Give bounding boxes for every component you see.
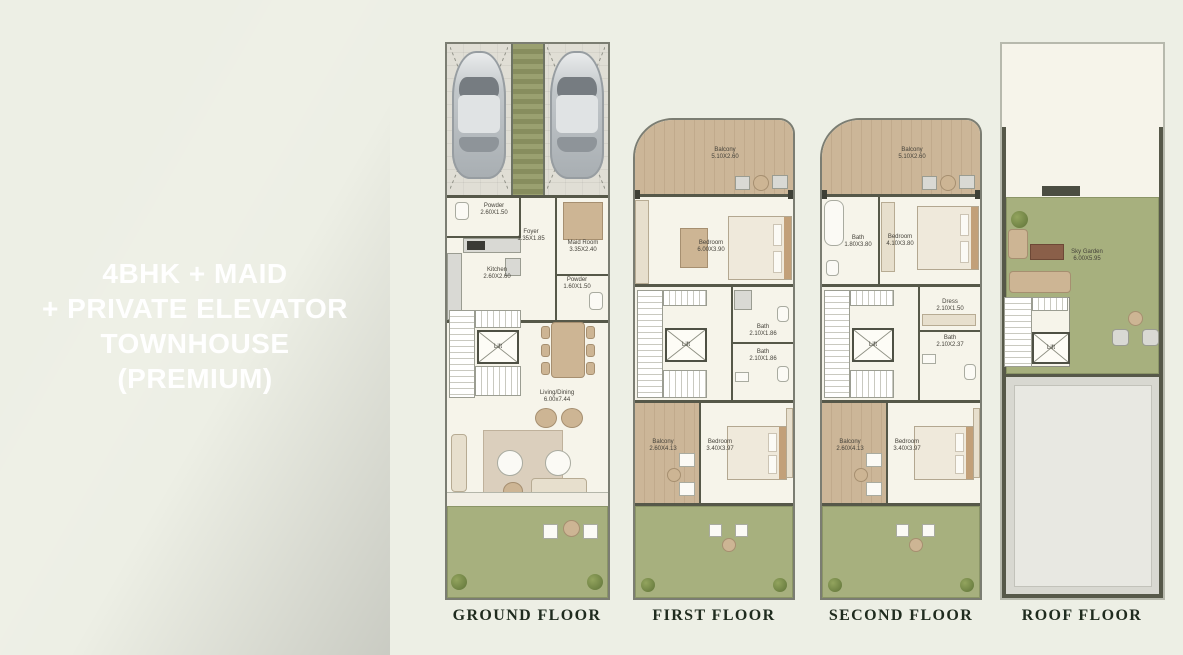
maid-bed xyxy=(563,202,603,240)
wall xyxy=(555,198,557,320)
room-dims: 2.60X1.50 xyxy=(480,210,507,217)
garden-chair xyxy=(1142,329,1159,346)
car-roof xyxy=(458,95,500,133)
roof-area xyxy=(1006,377,1159,594)
lift-label: Lift xyxy=(1034,334,1068,362)
pillow xyxy=(955,433,964,452)
lift-label: Lift xyxy=(854,330,892,360)
plant xyxy=(641,578,655,592)
room-name: Living/Dining xyxy=(540,390,574,397)
armchair xyxy=(561,408,583,428)
lift: Lift xyxy=(665,328,707,362)
title-line-2: + PRIVATE ELEVATOR xyxy=(0,291,390,326)
room-name: Foyer xyxy=(523,229,538,236)
room-dims: 3.40X3.97 xyxy=(893,446,920,453)
wall xyxy=(886,403,888,503)
post xyxy=(822,190,827,199)
room-label: Powder 1.60X1.50 xyxy=(563,277,590,291)
room-dims: 1.60X1.50 xyxy=(563,284,590,291)
balcony-chair xyxy=(772,175,788,189)
garden-table xyxy=(563,520,580,537)
sofa xyxy=(451,434,467,492)
lift-label: Lift xyxy=(667,330,705,360)
wall xyxy=(635,194,793,197)
title-line-3: TOWNHOUSE xyxy=(0,326,390,361)
car-windshield xyxy=(557,77,597,97)
garden-chair xyxy=(709,524,722,537)
stairs xyxy=(663,290,707,306)
stairs xyxy=(850,290,894,306)
garden-area xyxy=(822,506,980,598)
room-label: Maid Room 3.35X2.40 xyxy=(568,240,599,254)
room-dims: 2.60X4.13 xyxy=(836,446,863,453)
room-label: Powder 2.60X1.50 xyxy=(480,203,507,217)
wall xyxy=(1159,127,1163,598)
pillow xyxy=(960,214,969,236)
balcony-chair xyxy=(959,175,975,189)
toilet xyxy=(964,364,976,380)
balcony-chair xyxy=(866,453,882,467)
pillow xyxy=(768,455,777,474)
bed-headboard xyxy=(971,207,978,269)
room-name: Bedroom xyxy=(888,234,912,241)
garden-chair xyxy=(1112,329,1129,346)
wall xyxy=(918,330,980,332)
wall xyxy=(635,284,793,287)
coffee-table xyxy=(497,450,523,476)
toilet xyxy=(777,366,789,382)
brochure-page: 4BHK + MAID + PRIVATE ELEVATOR TOWNHOUSE… xyxy=(0,0,1183,655)
wall xyxy=(731,342,793,344)
floor-title-ground: GROUND FLOOR xyxy=(453,607,602,625)
room-name: Bedroom xyxy=(708,439,732,446)
balcony-table xyxy=(753,175,769,191)
room-label: Balcony 5.10X2.60 xyxy=(898,147,925,161)
room-name: Balcony xyxy=(652,439,673,446)
post xyxy=(635,190,640,199)
garden-chair xyxy=(735,524,748,537)
room-label: Balcony 2.60X4.13 xyxy=(649,439,676,453)
title-line-1: 4BHK + MAID xyxy=(0,256,390,291)
room-dims: 5.10X2.60 xyxy=(898,154,925,161)
garden-chair xyxy=(922,524,935,537)
dining-chair xyxy=(586,362,595,375)
car-rear xyxy=(557,137,597,152)
stairs xyxy=(850,370,894,398)
car-icon xyxy=(550,51,604,179)
balcony-table xyxy=(940,175,956,191)
room-label: Dress 2.10X1.50 xyxy=(936,299,963,313)
dining-chair xyxy=(541,344,550,357)
coffee-table xyxy=(1030,244,1064,260)
floor-title-roof: ROOF FLOOR xyxy=(1022,607,1143,625)
toilet xyxy=(826,260,839,276)
wall xyxy=(918,287,920,400)
garden-chair xyxy=(896,524,909,537)
room-dims: 2.10X1.50 xyxy=(936,306,963,313)
garden-chair xyxy=(583,524,598,539)
stairs xyxy=(475,366,521,396)
balcony-chair xyxy=(922,176,937,190)
first-floor-plan: Lift Balcony 5.10X2.60 Bedroom 6.00 xyxy=(633,118,795,600)
stairs xyxy=(475,310,521,328)
room-label: Bath 1.80X3.80 xyxy=(844,235,871,249)
dining-chair xyxy=(541,362,550,375)
balcony-chair xyxy=(679,482,695,496)
balcony-table xyxy=(854,468,868,482)
room-name: Bedroom xyxy=(895,439,919,446)
bed-headboard xyxy=(779,427,786,479)
bathtub xyxy=(824,200,844,246)
page-title: 4BHK + MAID + PRIVATE ELEVATOR TOWNHOUSE… xyxy=(0,256,390,396)
toilet xyxy=(455,202,469,220)
coffee-table xyxy=(545,450,571,476)
room-name: Balcony xyxy=(714,147,735,154)
room-dims: 6.00X3.90 xyxy=(697,247,724,254)
room-label: Balcony 2.60X4.13 xyxy=(836,439,863,453)
dining-table xyxy=(551,322,585,378)
garden-chair xyxy=(543,524,558,539)
garden-table xyxy=(909,538,923,552)
garden-area xyxy=(447,506,608,598)
room-dims: 5.10X2.60 xyxy=(711,154,738,161)
room-name: Bath xyxy=(944,335,956,342)
dining-chair xyxy=(586,344,595,357)
equipment-unit xyxy=(1042,186,1080,196)
plant xyxy=(1011,211,1028,228)
post xyxy=(975,190,980,199)
dining-chair xyxy=(541,326,550,339)
room-label: Bath 2.10X2.37 xyxy=(936,335,963,349)
car-roof xyxy=(556,95,598,133)
roof-floor-plan: Lift Sky Garden 6.00X5.95 xyxy=(1000,42,1165,600)
room-dims: 3.35X2.40 xyxy=(569,247,596,254)
room-name: Bath xyxy=(757,324,769,331)
room-name: Bath xyxy=(852,235,864,242)
room-name: Kitchen xyxy=(487,267,507,274)
title-panel: 4BHK + MAID + PRIVATE ELEVATOR TOWNHOUSE… xyxy=(0,0,390,655)
room-label: Bath 2.10X1.86 xyxy=(749,324,776,338)
lift: Lift xyxy=(477,330,519,364)
room-dims: 4.10X3.80 xyxy=(886,241,913,248)
wardrobe xyxy=(635,200,649,284)
stairs xyxy=(449,310,475,398)
car-rear xyxy=(459,137,499,152)
room-label: Kitchen 2.60X2.60 xyxy=(483,267,510,281)
room-name: Powder xyxy=(484,203,504,210)
balcony-chair xyxy=(866,482,882,496)
wall xyxy=(822,194,980,197)
pillow xyxy=(768,433,777,452)
sofa xyxy=(1009,271,1071,293)
room-name: Bedroom xyxy=(699,240,723,247)
plant xyxy=(451,574,467,590)
room-name: Sky Garden xyxy=(1071,249,1103,256)
room-label: Bedroom 3.40X3.97 xyxy=(706,439,733,453)
plant xyxy=(587,574,603,590)
room-label: Balcony 5.10X2.60 xyxy=(711,147,738,161)
stairs xyxy=(824,290,850,398)
pillow xyxy=(960,241,969,263)
room-dims: 2.10X1.86 xyxy=(749,356,776,363)
room-name: Balcony xyxy=(839,439,860,446)
room-dims: 3.40X3.97 xyxy=(706,446,733,453)
lift: Lift xyxy=(852,328,894,362)
lift: Lift xyxy=(1032,332,1070,364)
title-line-4: (PREMIUM) xyxy=(0,361,390,396)
lift-label: Lift xyxy=(479,332,517,362)
room-dims: 2.60X2.60 xyxy=(483,274,510,281)
room-label: Sky Garden 6.00X5.95 xyxy=(1071,249,1103,263)
room-name: Maid Room xyxy=(568,240,599,247)
driveway-steps xyxy=(511,44,545,195)
bed-headboard xyxy=(784,217,791,279)
wall xyxy=(878,197,880,284)
ground-floor-plan: Lift Powder 2.60X1.50 xyxy=(445,42,610,600)
car-windshield xyxy=(459,77,499,97)
wall xyxy=(447,195,608,198)
stairs xyxy=(637,290,663,398)
armchair xyxy=(1008,229,1028,259)
room-label: Bedroom 4.10X3.80 xyxy=(886,234,913,248)
dining-chair xyxy=(586,326,595,339)
dress-shelf xyxy=(922,314,976,326)
toilet xyxy=(589,292,603,310)
post xyxy=(788,190,793,199)
bed xyxy=(917,206,979,270)
wall xyxy=(555,274,608,276)
bed xyxy=(727,426,787,480)
roof-inner xyxy=(1014,385,1152,587)
wardrobe xyxy=(786,408,793,478)
garden-area xyxy=(635,506,793,598)
balcony-table xyxy=(667,468,681,482)
plant xyxy=(773,578,787,592)
stove xyxy=(467,241,485,250)
floor-title-second: SECOND FLOOR xyxy=(829,607,973,625)
shower xyxy=(734,290,752,310)
room-label: Bath 2.10X1.86 xyxy=(749,349,776,363)
wardrobe xyxy=(973,408,980,478)
wall xyxy=(699,403,701,503)
room-label: Bedroom 6.00X3.90 xyxy=(697,240,724,254)
wall xyxy=(822,284,980,287)
plant xyxy=(960,578,974,592)
room-label: Foyer 1.35X1.85 xyxy=(517,229,544,243)
room-dims: 2.10X2.37 xyxy=(936,342,963,349)
room-dims: 2.60X4.13 xyxy=(649,446,676,453)
pillow xyxy=(773,251,782,273)
stairs xyxy=(1004,297,1032,367)
room-label: Bedroom 3.40X3.97 xyxy=(893,439,920,453)
second-floor-plan: Lift Balcony 5.10X2.60 Bath 1.80X3. xyxy=(820,118,982,600)
floor-title-first: FIRST FLOOR xyxy=(652,607,775,625)
stairs xyxy=(1032,297,1068,311)
sink xyxy=(922,354,936,364)
room-dims: 2.10X1.86 xyxy=(749,331,776,338)
pillow xyxy=(773,224,782,246)
armchair xyxy=(535,408,557,428)
bed xyxy=(914,426,974,480)
room-label: Living/Dining 6.00x7.44 xyxy=(540,390,574,404)
garden-table xyxy=(722,538,736,552)
bed-headboard xyxy=(966,427,973,479)
plant xyxy=(828,578,842,592)
room-name: Balcony xyxy=(901,147,922,154)
balcony-chair xyxy=(735,176,750,190)
room-name: Bath xyxy=(757,349,769,356)
toilet xyxy=(777,306,789,322)
room-name: Dress xyxy=(942,299,958,306)
garden-table xyxy=(1128,311,1143,326)
stairs xyxy=(663,370,707,398)
room-name: Powder xyxy=(567,277,587,284)
pillow xyxy=(955,455,964,474)
room-dims: 6.00X5.95 xyxy=(1073,256,1100,263)
sink xyxy=(735,372,749,382)
room-dims: 1.80X3.80 xyxy=(844,242,871,249)
garage-area xyxy=(447,44,608,195)
car-icon xyxy=(452,51,506,179)
bed xyxy=(728,216,792,280)
wall xyxy=(1002,594,1163,598)
balcony-chair xyxy=(679,453,695,467)
room-dims: 1.35X1.85 xyxy=(517,236,544,243)
room-dims: 6.00x7.44 xyxy=(544,397,570,404)
